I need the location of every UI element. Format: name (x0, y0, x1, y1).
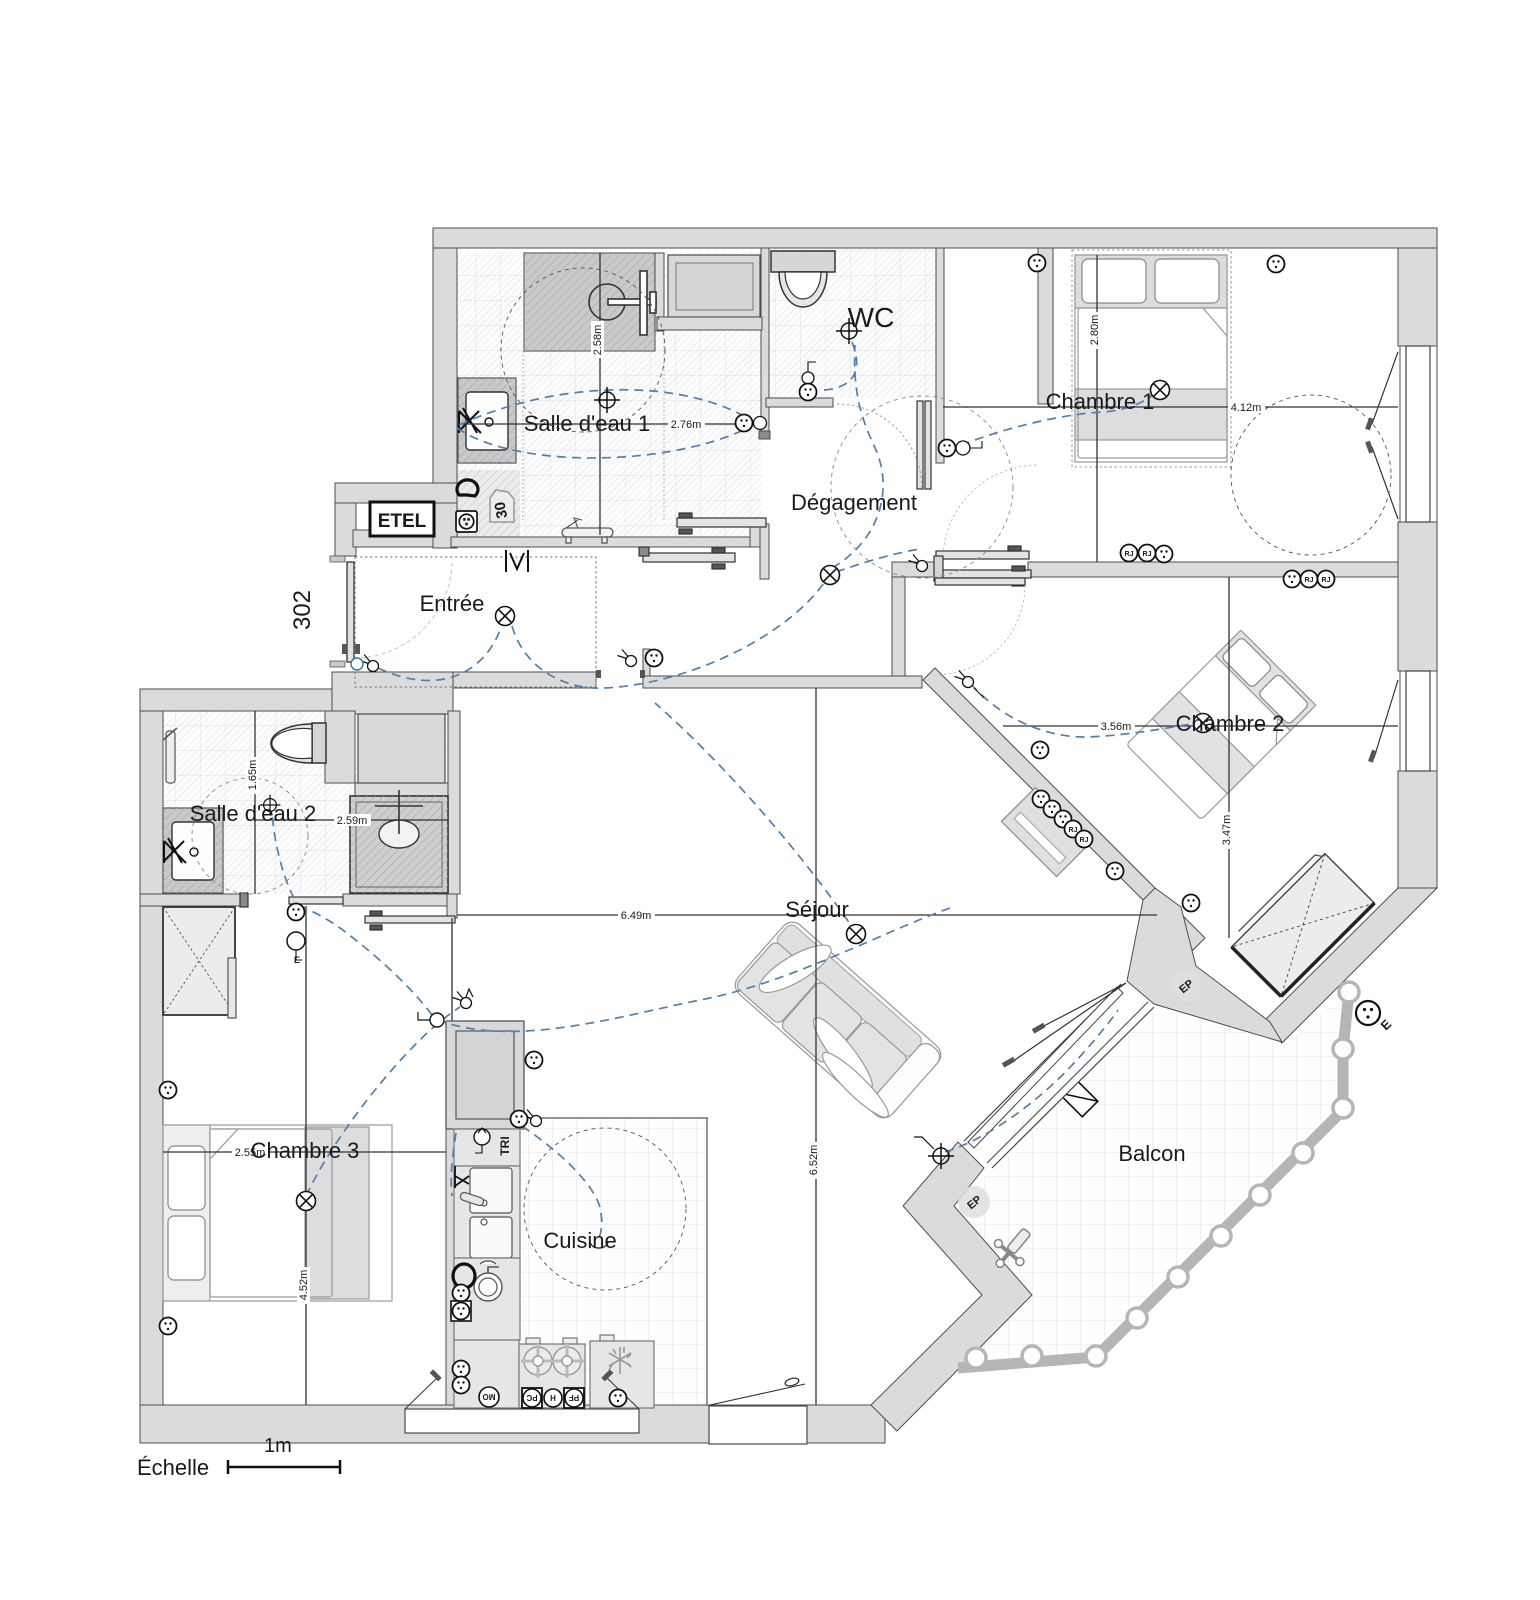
svg-text:MO: MO (483, 1392, 496, 1401)
svg-text:PF: PF (569, 1393, 579, 1402)
svg-text:Chambre 2: Chambre 2 (1176, 711, 1285, 736)
svg-text:1.65m: 1.65m (247, 760, 259, 791)
svg-text:Échelle: Échelle (137, 1455, 209, 1480)
svg-text:PC: PC (526, 1393, 537, 1402)
svg-text:Dégagement: Dégagement (791, 490, 917, 515)
svg-text:Balcon: Balcon (1118, 1141, 1185, 1166)
svg-text:Salle d'eau 1: Salle d'eau 1 (524, 411, 651, 436)
svg-text:ETEL: ETEL (378, 511, 427, 532)
svg-text:6.52m: 6.52m (808, 1145, 820, 1176)
svg-text:Entrée: Entrée (420, 591, 485, 616)
svg-text:Chambre 3: Chambre 3 (251, 1138, 360, 1163)
svg-text:WC: WC (848, 302, 895, 333)
svg-text:1m: 1m (264, 1435, 292, 1457)
svg-text:2.59m: 2.59m (337, 815, 368, 827)
svg-text:4.12m: 4.12m (1231, 402, 1262, 414)
svg-text:TRI: TRI (498, 1136, 512, 1155)
svg-text:Séjour: Séjour (785, 897, 849, 922)
svg-text:3.47m: 3.47m (1221, 815, 1233, 846)
svg-text:H: H (550, 1393, 556, 1402)
svg-text:2.58m: 2.58m (592, 325, 604, 356)
svg-text:3.56m: 3.56m (1101, 721, 1132, 733)
svg-text:Salle d'eau 2: Salle d'eau 2 (190, 801, 317, 826)
svg-text:Chambre 1: Chambre 1 (1046, 389, 1155, 414)
svg-text:2.76m: 2.76m (671, 419, 702, 431)
svg-text:4.52m: 4.52m (298, 1270, 310, 1301)
svg-text:2.80m: 2.80m (1089, 315, 1101, 346)
svg-text:E: E (294, 955, 300, 965)
svg-text:302: 302 (289, 590, 316, 630)
svg-text:30: 30 (492, 500, 512, 519)
svg-text:Cuisine: Cuisine (543, 1228, 616, 1253)
svg-text:6.49m: 6.49m (621, 910, 652, 922)
